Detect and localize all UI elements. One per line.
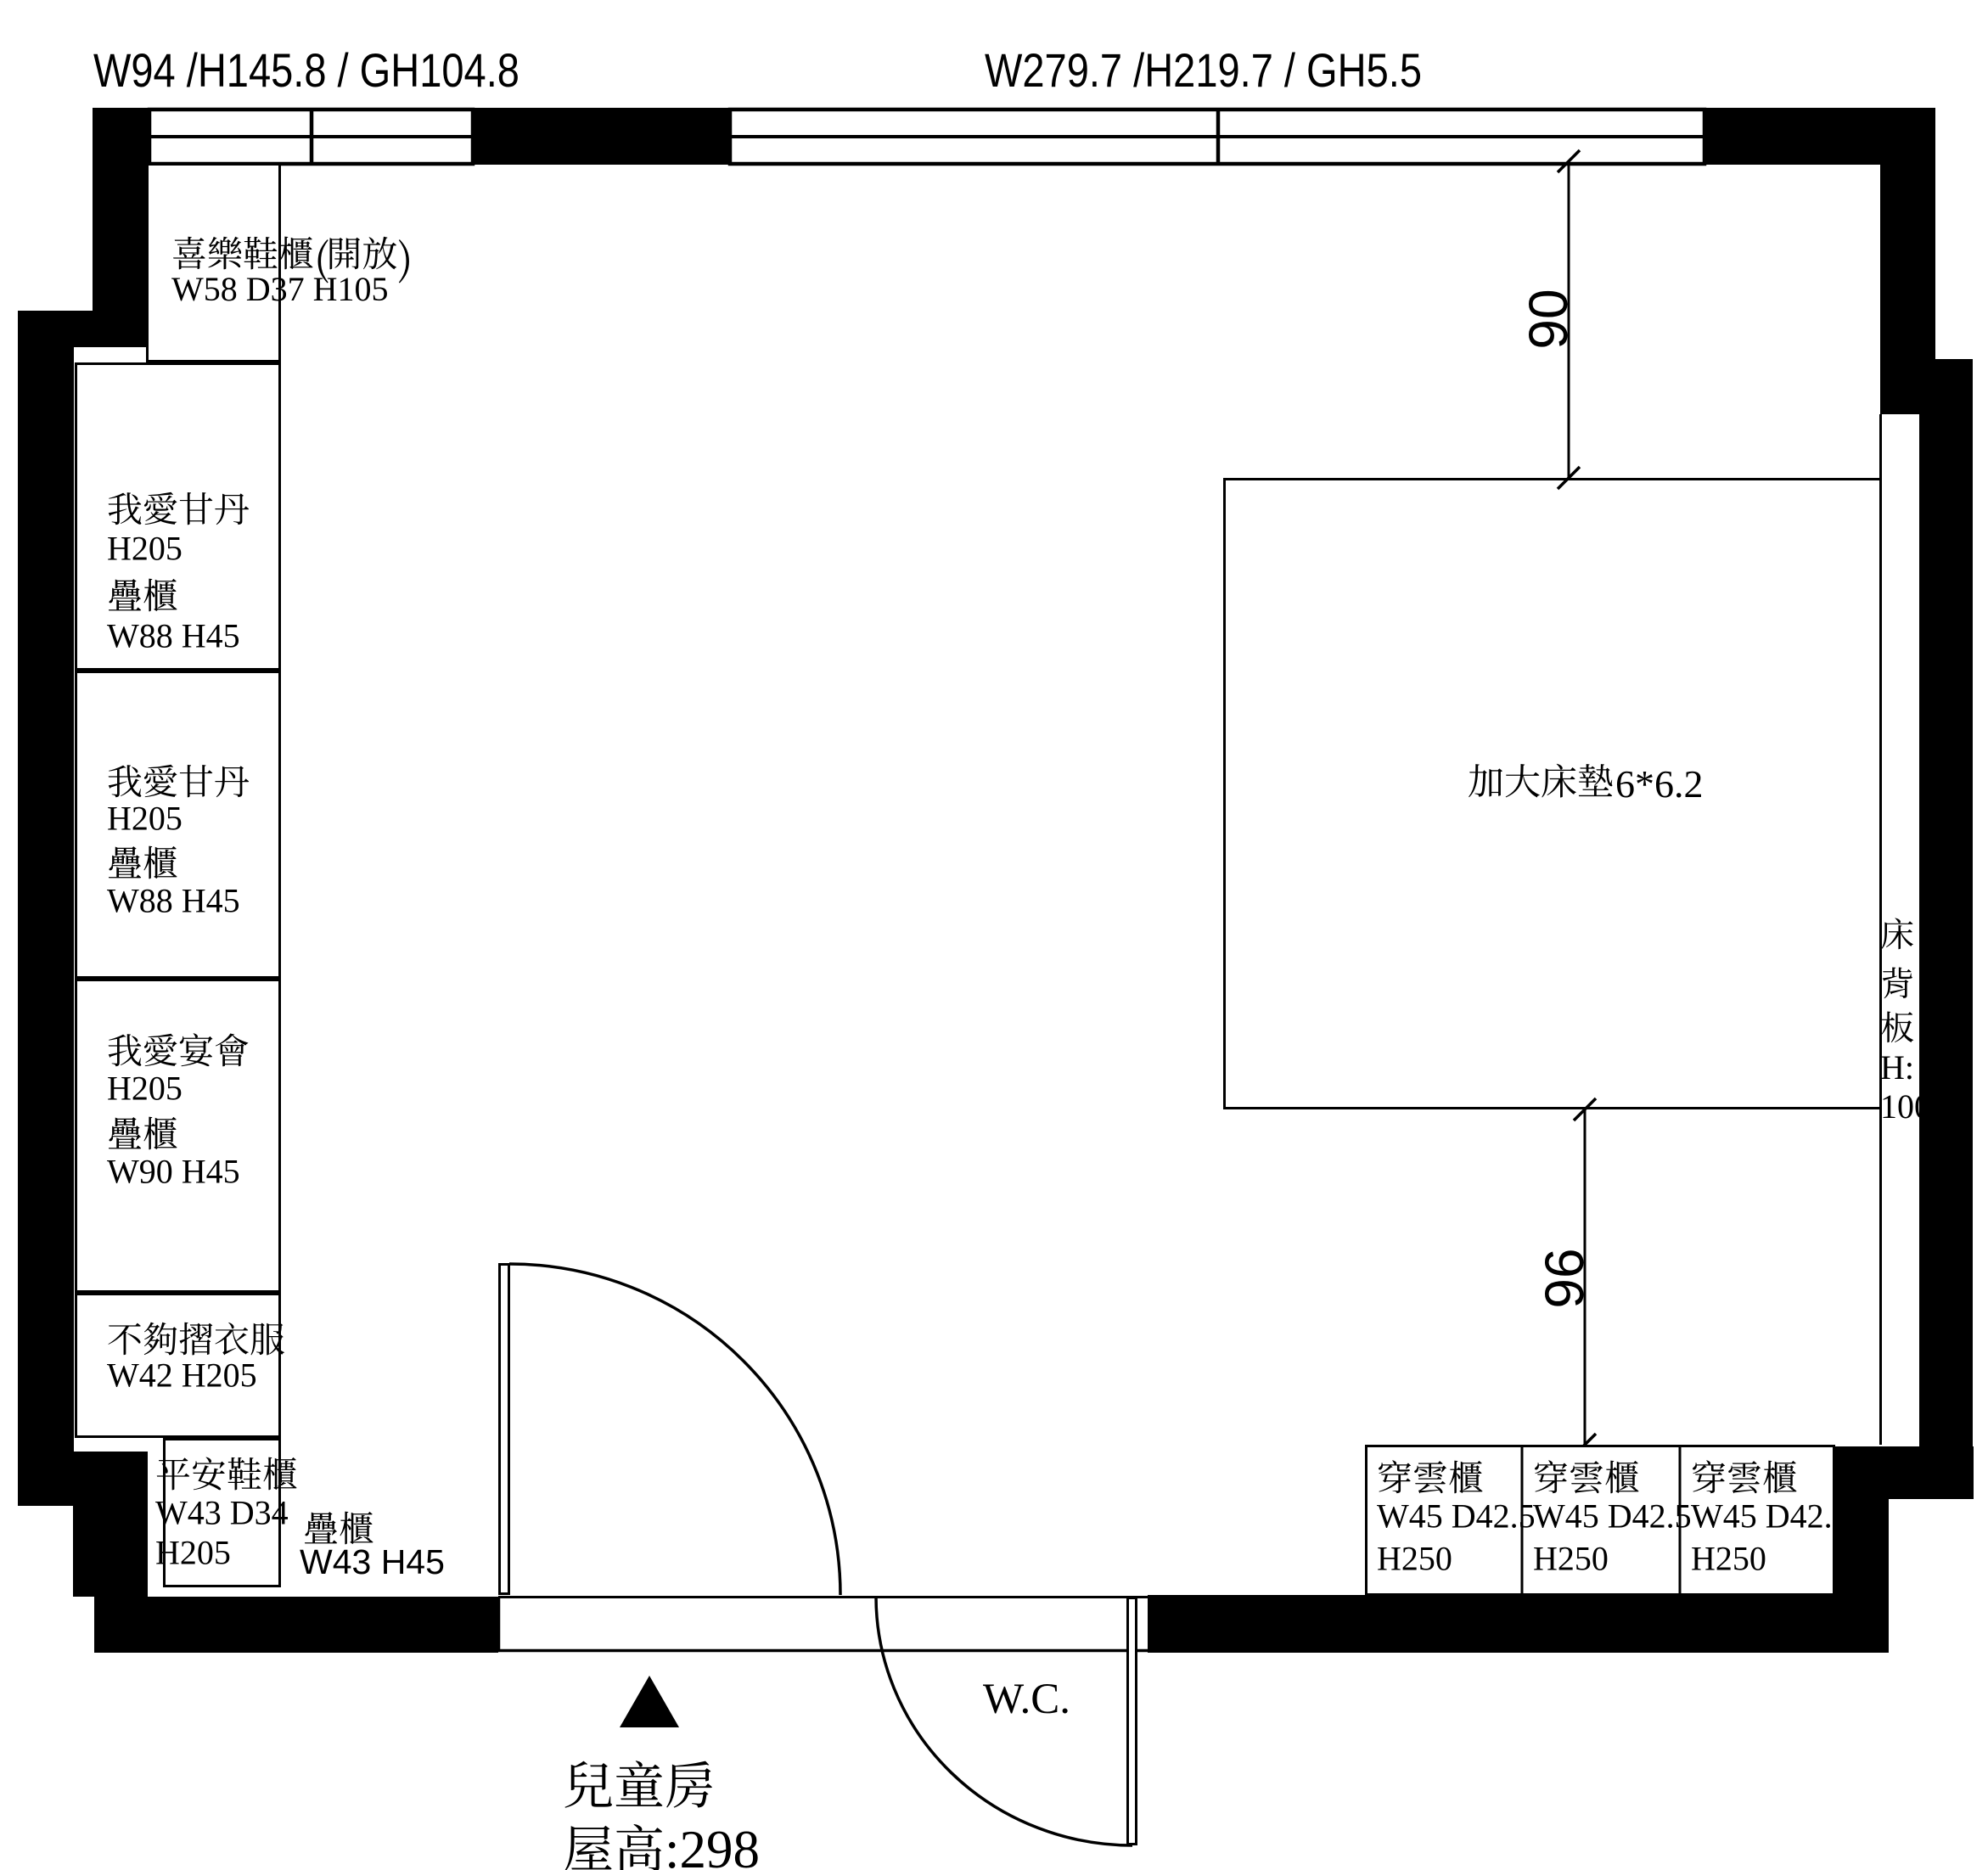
- svg-text:W279.7 /H219.7 / GH5.5: W279.7 /H219.7 / GH5.5: [985, 43, 1422, 97]
- svg-text:6*6.2: 6*6.2: [1615, 762, 1704, 806]
- svg-text::298: :298: [665, 1820, 760, 1870]
- svg-text:H205: H205: [107, 530, 183, 568]
- svg-text:H250: H250: [1691, 1540, 1766, 1578]
- svg-text:H250: H250: [1533, 1540, 1609, 1578]
- svg-text:W58 D37 H105: W58 D37 H105: [171, 270, 389, 308]
- svg-text:96: 96: [1534, 1248, 1595, 1308]
- svg-text:H205: H205: [107, 1070, 183, 1108]
- svg-text:W90 H45: W90 H45: [107, 1153, 240, 1191]
- svg-text:W45 D42.5: W45 D42.5: [1377, 1497, 1536, 1536]
- svg-text:W94 /H145.8 / GH104.8: W94 /H145.8 / GH104.8: [93, 43, 519, 97]
- svg-text:H205: H205: [107, 800, 183, 838]
- svg-text:H:: H:: [1880, 1048, 1914, 1087]
- svg-text:W42 H205: W42 H205: [107, 1356, 257, 1395]
- svg-text:H250: H250: [1377, 1540, 1452, 1578]
- svg-text:90: 90: [1518, 289, 1579, 349]
- svg-text:H205: H205: [155, 1534, 231, 1572]
- svg-text:W43 H45: W43 H45: [300, 1542, 445, 1581]
- svg-text:W88 H45: W88 H45: [107, 617, 240, 655]
- svg-text:W45 D42.5: W45 D42.5: [1533, 1497, 1692, 1536]
- svg-text:W.C.: W.C.: [983, 1676, 1070, 1723]
- svg-text:W88 H45: W88 H45: [107, 882, 240, 920]
- svg-text:W43 D34: W43 D34: [155, 1494, 289, 1532]
- svg-text:W45 D42.5: W45 D42.5: [1691, 1497, 1850, 1536]
